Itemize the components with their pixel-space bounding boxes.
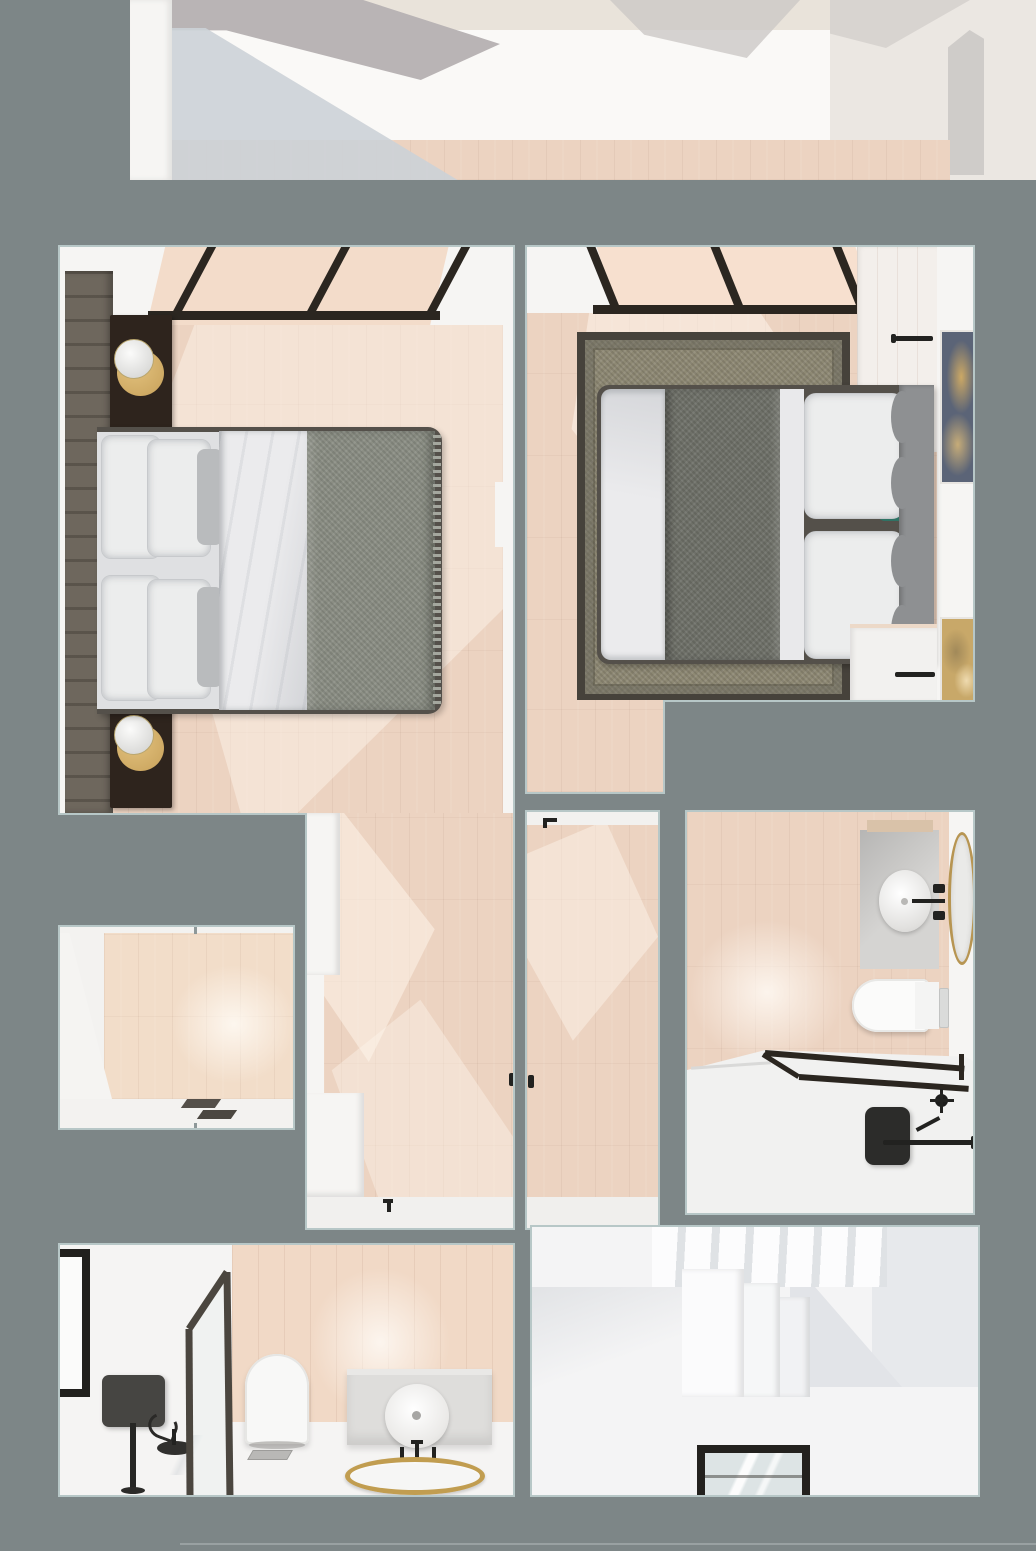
toilet xyxy=(245,1354,309,1444)
towel-rail xyxy=(895,672,935,677)
basin-faucet-handle xyxy=(933,884,945,893)
headboard-scallop xyxy=(891,457,913,509)
stair-box xyxy=(682,1269,744,1397)
toilet-tank xyxy=(915,982,939,1029)
toilet-base-shadow xyxy=(249,1441,305,1449)
oval-mirror xyxy=(948,832,975,965)
bed1-duvet xyxy=(219,431,307,710)
headboard-scallop xyxy=(891,535,913,587)
artwork-gold xyxy=(942,619,975,701)
door-marker xyxy=(194,927,197,934)
basin-drain xyxy=(901,898,908,905)
room-upper-strip xyxy=(130,0,1036,180)
corridor-bottom-floor xyxy=(307,1197,515,1230)
faucet-spout-top xyxy=(411,1440,423,1444)
shower-mixer-panel xyxy=(865,1107,910,1165)
shower-drain-plate xyxy=(247,1450,293,1460)
basin-faucet-handle xyxy=(933,911,945,920)
basin-faucet-spout xyxy=(912,899,945,903)
door-marker xyxy=(194,1123,197,1130)
bedroom1-bottom-edge xyxy=(58,813,305,815)
shower-head-arm xyxy=(940,1089,943,1113)
doormat-stripe xyxy=(181,1099,221,1108)
skylight-sill xyxy=(593,305,883,314)
doormat-stripe xyxy=(197,1110,237,1119)
headboard-scallop xyxy=(891,391,913,443)
bedroom2-floor-extension xyxy=(525,700,665,794)
upper-left-wall xyxy=(130,0,172,180)
bed1-throw-blanket xyxy=(307,431,435,710)
room-bathroom-bottom xyxy=(58,1243,515,1497)
bedroom2-bottom-edge xyxy=(665,700,975,702)
glass-floor-panel xyxy=(697,1445,810,1497)
room-hallway xyxy=(525,810,660,1230)
room-bathroom-right xyxy=(685,810,975,1215)
room-closet xyxy=(58,925,295,1130)
vanity-wood-edge xyxy=(867,820,933,832)
stair-wall-shadow xyxy=(872,1227,980,1387)
pillow xyxy=(804,393,904,519)
bed-1 xyxy=(97,427,442,714)
glass-partition-sill xyxy=(148,311,440,320)
hallway-sunlight xyxy=(527,812,658,1228)
landing-shadow xyxy=(532,1287,682,1407)
door-handle xyxy=(543,818,547,828)
bottom-edge-line xyxy=(180,1543,1036,1545)
closet-floor-sheen xyxy=(104,933,295,1099)
towel-bar xyxy=(883,1140,975,1145)
bed2-sheet xyxy=(780,389,804,660)
bed2-runner-throw xyxy=(665,389,780,660)
shower-riser-pipe xyxy=(130,1423,136,1491)
artwork-navy-gold xyxy=(942,332,975,482)
bedroom1-right-niche xyxy=(495,482,515,547)
flush-plate xyxy=(939,988,949,1028)
table-lamp-sphere xyxy=(114,715,154,755)
gold-ring-mirror xyxy=(345,1457,485,1495)
shower-pipe-base xyxy=(121,1487,145,1494)
tub-shower-zone xyxy=(687,1050,975,1215)
stair-box xyxy=(780,1297,810,1397)
towel-rail xyxy=(895,336,933,341)
bed2-duvet xyxy=(601,389,665,660)
upper-cream-shadow xyxy=(948,30,984,175)
floor-plan-render xyxy=(0,0,1036,1551)
corridor-wardrobe xyxy=(307,813,340,975)
door-handle xyxy=(509,1073,515,1086)
door-handle xyxy=(387,1199,391,1212)
room-bedroom-1 xyxy=(58,245,515,815)
bed-2 xyxy=(597,385,934,664)
room-stairs xyxy=(530,1225,980,1497)
throw-fringe xyxy=(433,435,441,705)
stair-box xyxy=(744,1283,780,1397)
table-lamp-sphere xyxy=(114,339,154,379)
towel-bar-end xyxy=(971,1136,975,1149)
basin-drain xyxy=(412,1411,421,1420)
closet-floor xyxy=(104,933,295,1099)
shower-glass-frame-bar xyxy=(959,1054,964,1080)
corridor-wall-strip xyxy=(307,975,324,1093)
bedside-bench xyxy=(850,624,937,702)
towel-rail-end xyxy=(891,334,896,343)
window-frame xyxy=(58,1249,90,1397)
room-bedroom-2 xyxy=(525,245,975,702)
glass-floor-mullion xyxy=(705,1475,802,1478)
corridor-cabinet xyxy=(307,1093,364,1197)
door-handle xyxy=(528,1075,534,1088)
room-corridor xyxy=(305,813,515,1230)
